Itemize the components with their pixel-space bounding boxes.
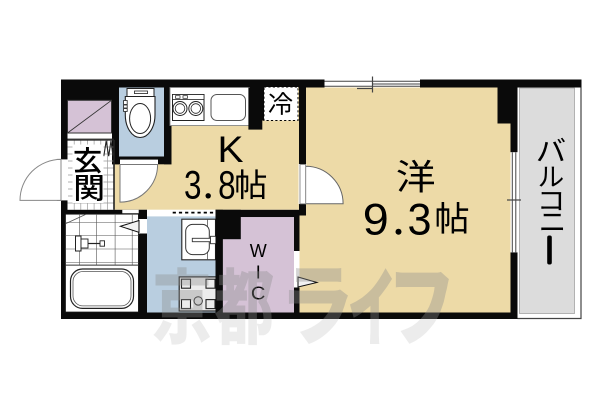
svg-text:9: 9 (363, 195, 389, 244)
svg-text:3: 3 (408, 195, 432, 244)
svg-text:3: 3 (184, 164, 202, 208)
svg-text:W: W (250, 241, 267, 261)
svg-text:8: 8 (218, 164, 236, 208)
